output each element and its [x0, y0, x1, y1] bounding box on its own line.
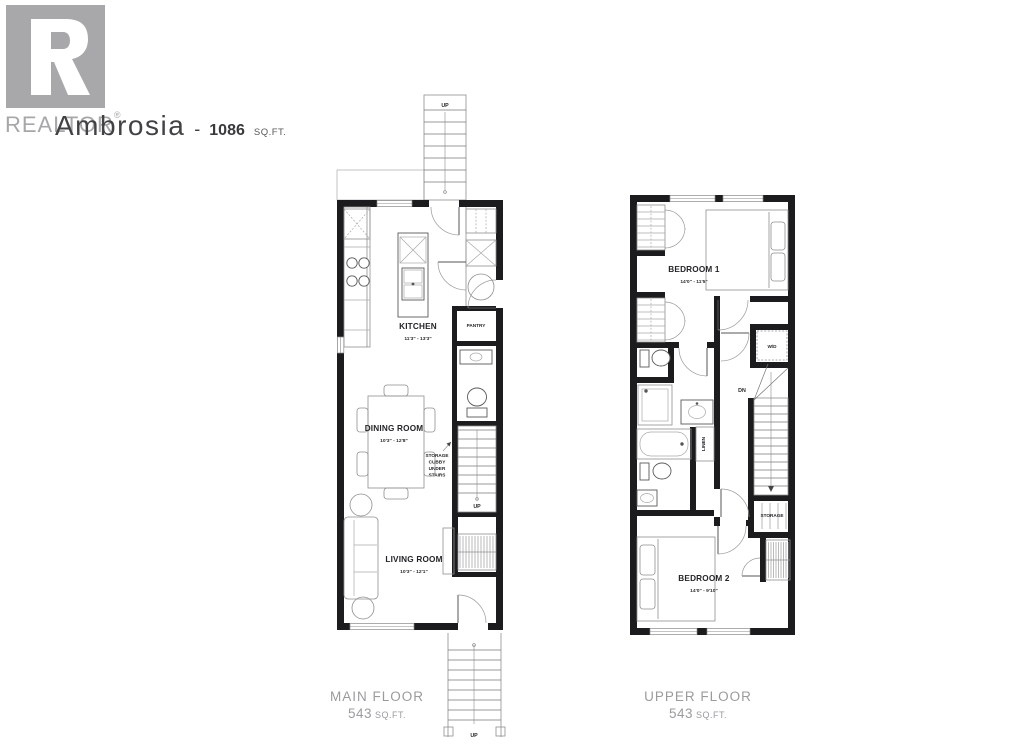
up-label-top-stairs: UP	[441, 103, 449, 109]
main-top-exterior-stairs: UP	[337, 95, 466, 200]
up-label-interior-stairs: UP	[473, 504, 481, 510]
upper-floor-caption-area: 543 SQ.FT.	[618, 706, 778, 721]
storage-label: STORAGE	[760, 513, 783, 518]
upper-floor-caption: UPPER FLOOR 543 SQ.FT.	[618, 689, 778, 721]
bedroom1-label: BEDROOM 1	[668, 265, 720, 274]
living-room-dims: 10'3" - 12'1"	[400, 569, 428, 575]
upper-stairs	[754, 364, 788, 529]
upper-floor-area-unit: SQ.FT.	[696, 710, 727, 720]
dining-room-dims: 10'3" - 12'8"	[380, 438, 408, 444]
main-floor-caption-area: 543 SQ.FT.	[297, 706, 457, 721]
main-interior-stairs: UP STORAGE CUBBY UNDER STAIRS	[425, 426, 496, 512]
linen-label: LINEN	[701, 436, 706, 451]
floorplan-page: REALTOR® Ambrosia - 1086 SQ.FT. UP	[0, 0, 1024, 752]
pantry-label: PANTRY	[467, 323, 487, 328]
upper-floor-caption-title: UPPER FLOOR	[618, 689, 778, 704]
bedroom2-dims: 14'0" - 9'10"	[690, 588, 718, 594]
up-label-bottom-stairs: UP	[470, 733, 478, 739]
storage-cubby-label-line1: STORAGE	[425, 453, 448, 458]
main-floor-area-value: 543	[348, 706, 372, 721]
bathroom-fixtures	[637, 331, 787, 517]
kitchen-dims: 11'3" - 13'3"	[404, 336, 431, 342]
storage-cubby-label-line4: STAIRS	[429, 473, 446, 478]
bedroom2-label: BEDROOM 2	[678, 574, 730, 583]
upper-floor-plan: BEDROOM 1 14'0" - 11'5" W/D DN LINEN STO…	[630, 195, 795, 635]
floorplan-drawing: UP	[0, 0, 1024, 752]
kitchen-label: KITCHEN	[399, 322, 437, 331]
upper-floor-area-value: 543	[669, 706, 693, 721]
main-floor-plan: UP	[337, 95, 505, 739]
main-bottom-exterior-stairs: UP	[444, 633, 505, 739]
washer-dryer-label: W/D	[767, 344, 777, 349]
living-room-label: LIVING ROOM	[385, 555, 442, 564]
storage-cubby-label-line3: UNDER	[429, 466, 446, 471]
stairs-down-label: DN	[738, 388, 746, 394]
storage-cubby-label-line2: CUBBY	[429, 460, 447, 465]
bedroom1-dims: 14'0" - 11'5"	[680, 279, 707, 285]
dining-room-label: DINING ROOM	[365, 424, 424, 433]
main-floor-caption-title: MAIN FLOOR	[297, 689, 457, 704]
main-floor-caption: MAIN FLOOR 543 SQ.FT.	[297, 689, 457, 721]
main-floor-area-unit: SQ.FT.	[375, 710, 406, 720]
powder-room-fixtures	[460, 350, 492, 417]
